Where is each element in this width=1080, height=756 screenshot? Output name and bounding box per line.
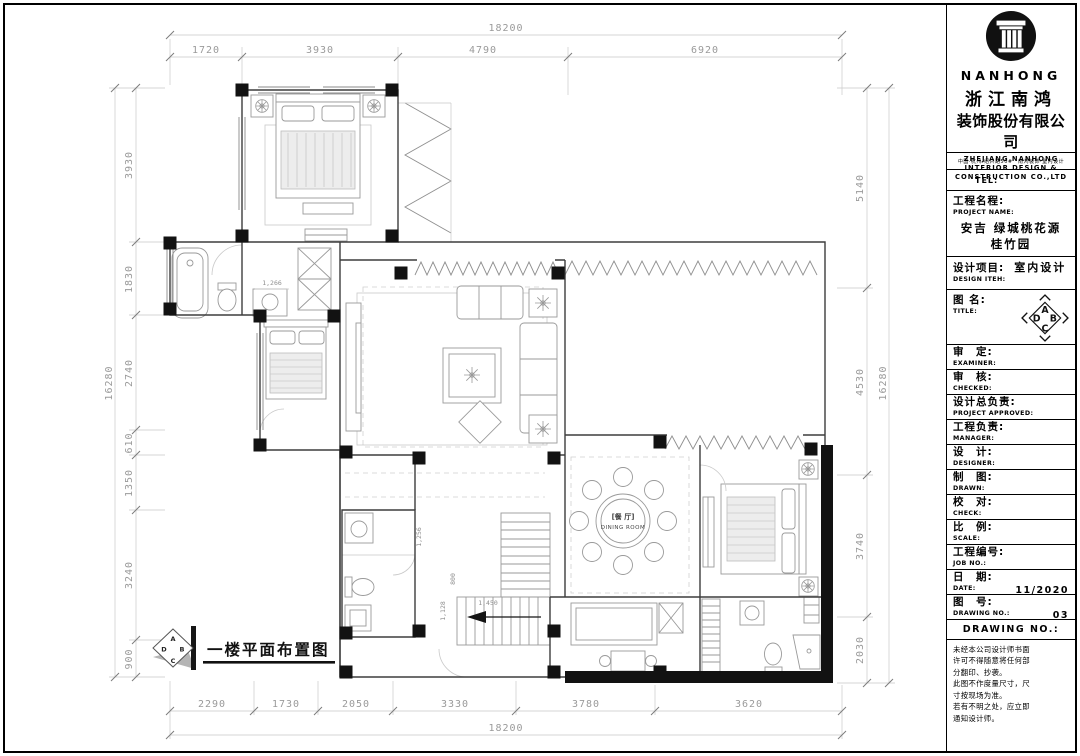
- dimension-right: 5140 4530 3740 2030 16280: [855, 84, 893, 687]
- dining-room-label-en: DINING ROOM: [601, 525, 645, 531]
- inner-dim-stair-width: 1,450: [478, 599, 498, 607]
- dim-left-seg: 3930: [124, 151, 135, 179]
- compass-e: B: [180, 646, 185, 654]
- field-checked: 审 核: CHECKED:: [947, 370, 1075, 395]
- dim-bottom-seg: 2290: [198, 699, 226, 710]
- dim-left-seg: 1830: [124, 265, 135, 293]
- dim-right-seg: 2030: [855, 636, 866, 664]
- thick-wall-east: [821, 445, 833, 683]
- dim-left-seg: 900: [124, 648, 135, 669]
- svg-text:A: A: [1041, 305, 1049, 316]
- dimension-top: 18200 1720 3930 4790 6920: [166, 23, 846, 61]
- field-project-approved: 设计总负责: PROJECT APPROVED:: [947, 395, 1075, 420]
- company-name-cn-1: 浙江南鸿: [953, 85, 1069, 110]
- compass-w: D: [161, 646, 167, 654]
- dim-top-seg: 6920: [691, 45, 719, 56]
- dining-room-label-cn: [餐 厅]: [612, 512, 635, 521]
- dim-right-seg: 4530: [855, 368, 866, 396]
- drawing-title-field: 图 名: TITLE: A B C D: [947, 290, 1075, 345]
- company-name-cn-2: 装饰股份有限公司: [953, 110, 1069, 152]
- right-bedroom-furniture: [703, 460, 818, 596]
- plant-icon: [535, 295, 551, 311]
- dim-right-overall: 16280: [878, 365, 889, 400]
- compass-s: C: [171, 657, 176, 665]
- svg-text:C: C: [1042, 324, 1049, 335]
- field-date: 日 期: DATE: 11/2020: [947, 570, 1075, 595]
- kitchen-furniture: [571, 599, 720, 673]
- field-drawn: 制 图: DRAWN:: [947, 470, 1075, 495]
- dim-bottom-seg: 2050: [342, 699, 370, 710]
- lamp-icon: [368, 100, 381, 113]
- field-examiner: 审 定: EXAMINER:: [947, 345, 1075, 370]
- dim-left-seg: 610: [124, 432, 135, 453]
- plan-title-group: A B C D 一楼平面布置图: [153, 626, 335, 670]
- dimension-bottom: 2290 1730 2050 3330 3780 3620 18200: [166, 699, 846, 739]
- svg-text:D: D: [1033, 314, 1041, 325]
- tel-row: TEL:: [947, 170, 1075, 191]
- project-name-field: 工程名程: PROJECT NAME: 安吉 绿城桃花源 桂竹园: [947, 191, 1075, 257]
- company-header: NANHONG 浙江南鸿 装饰股份有限公司 ZHEJIANG NANHONG I…: [947, 5, 1075, 153]
- orientation-compass-icon: A B C D: [1021, 294, 1069, 342]
- brand-name: NANHONG: [953, 68, 1069, 83]
- project-name-value: 桂竹园: [953, 236, 1069, 252]
- svg-text:B: B: [1050, 314, 1057, 325]
- design-item-field: 设计项目: 室内设计 DESIGN ITEH:: [947, 257, 1075, 290]
- field-check: 校 对: CHECK:: [947, 495, 1075, 520]
- field-manager: 工程负责: MANAGER:: [947, 420, 1075, 445]
- stair-bathroom-fixtures: 800 1,128 1,450 1,256: [342, 513, 498, 631]
- inner-dim-bath: 1,266: [262, 279, 282, 287]
- drawing-no-header: DRAWING NO.:: [947, 620, 1075, 640]
- dim-bottom-seg: 3780: [572, 699, 600, 710]
- plan-title: 一楼平面布置图: [207, 640, 330, 659]
- dim-top-seg: 4790: [469, 45, 497, 56]
- inner-dim-stair-left: 1,128: [439, 601, 447, 621]
- plan-title-underline: [203, 661, 335, 664]
- dimension-left: 16280 3930 1830 2740 610 1350 3240 900: [104, 84, 140, 681]
- left-bathroom-fixtures: 1,266: [172, 248, 289, 318]
- compass-n: A: [170, 635, 175, 643]
- dim-top-seg: 1720: [192, 45, 220, 56]
- plant-icon: [535, 421, 551, 437]
- right-bathroom-fixtures: [740, 597, 820, 673]
- drawing-no-value: 03: [1053, 610, 1069, 621]
- thick-wall-south: [565, 671, 833, 683]
- lamp-icon: [802, 463, 815, 476]
- dim-right-seg: 3740: [855, 532, 866, 560]
- living-room-furniture: [346, 286, 557, 445]
- stairs: [457, 513, 550, 645]
- stair-direction-arrow: [467, 611, 486, 623]
- dining-set: [餐 厅] DINING ROOM: [570, 468, 677, 575]
- field-job-no: 工程编号: JOB NO.:: [947, 545, 1075, 570]
- date-value: 11/2020: [1015, 585, 1069, 596]
- dim-top-overall: 18200: [488, 23, 523, 34]
- project-name-value: 安吉 绿城桃花源: [953, 220, 1069, 236]
- wardrobe: [298, 248, 331, 310]
- drawing-sheet: 18200 1720 3930 4790 6920 2290 1730 2050…: [3, 3, 1077, 753]
- master-bedroom-furniture: [251, 94, 385, 241]
- dim-left-seg: 3240: [124, 561, 135, 589]
- lamp-icon: [802, 580, 815, 593]
- plant-icon: [464, 367, 480, 383]
- dim-right-seg: 5140: [855, 174, 866, 202]
- field-scale: 比 例: SCALE:: [947, 520, 1075, 545]
- dim-bottom-overall: 18200: [488, 723, 523, 734]
- dim-left-overall: 16280: [104, 365, 115, 400]
- dim-top-seg: 3930: [306, 45, 334, 56]
- company-address: 中国·杭州·绍兴路50# 南鸿装饰·室内设计: [947, 153, 1075, 170]
- field-drawing-no: 图 号: DRAWING NO.: 03: [947, 595, 1075, 620]
- dim-bottom-seg: 3330: [441, 699, 469, 710]
- floor-plan-canvas: 18200 1720 3930 4790 6920 2290 1730 2050…: [5, 5, 943, 753]
- small-bedroom-furniture: [264, 320, 328, 399]
- lamp-icon: [256, 100, 269, 113]
- inner-dim-closet: 1,256: [415, 527, 423, 547]
- inner-dim-wc: 800: [449, 573, 457, 585]
- dim-bottom-seg: 3620: [735, 699, 763, 710]
- copyright-notes: 未经本公司设计师书面 许可不得随意将任何部 分翻印、抄袭。 此图不作度量尺寸，尺…: [947, 640, 1075, 751]
- title-block: NANHONG 浙江南鸿 装饰股份有限公司 ZHEJIANG NANHONG I…: [946, 5, 1075, 751]
- dim-bottom-seg: 1730: [272, 699, 300, 710]
- design-item-value: 室内设计: [1014, 259, 1066, 275]
- field-designer: 设 计: DESIGNER:: [947, 445, 1075, 470]
- dim-left-seg: 1350: [124, 469, 135, 497]
- column-icon: [985, 10, 1037, 62]
- dim-left-seg: 2740: [124, 359, 135, 387]
